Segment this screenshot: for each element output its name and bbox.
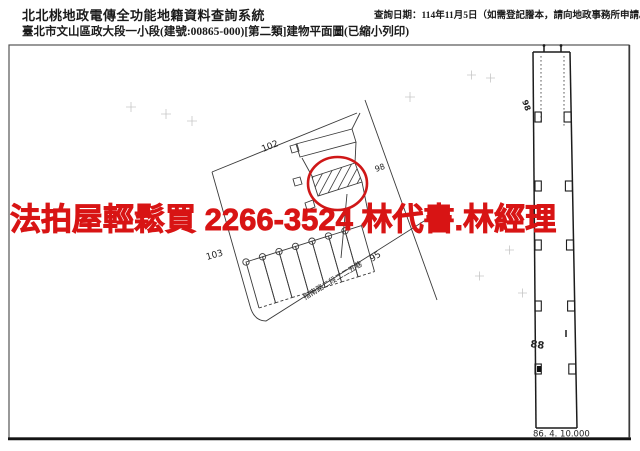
lot-label-upper: 102 — [260, 139, 280, 155]
strip-label-top: 98 — [520, 99, 532, 113]
lot-label-right: 98 — [374, 162, 387, 174]
building-strip: 98 88 86. 4. 10.000 — [520, 44, 590, 439]
survey-cross-marks — [126, 71, 527, 298]
sheet-frame — [8, 45, 631, 439]
lot-label-lower-right: 95 — [368, 250, 383, 265]
strip-door-notches — [535, 112, 576, 374]
overlay-ad-text: 法拍屋輕鬆買 2266-3524 林代書.林經理 — [10, 203, 638, 237]
lot-label-lower-left: 103 — [205, 249, 224, 263]
strip-dimension-lines — [541, 56, 564, 128]
strip-label-mid: 88 — [530, 339, 545, 352]
strip-date-scale: 86. 4. 10.000 — [533, 430, 590, 440]
road-name-label: 指南路二段二二五巷 — [301, 258, 364, 302]
document-page: 北北桃地政電傳全功能地籍資料查詢系統 臺北市文山區政大段一小段(建號:00865… — [0, 0, 640, 451]
